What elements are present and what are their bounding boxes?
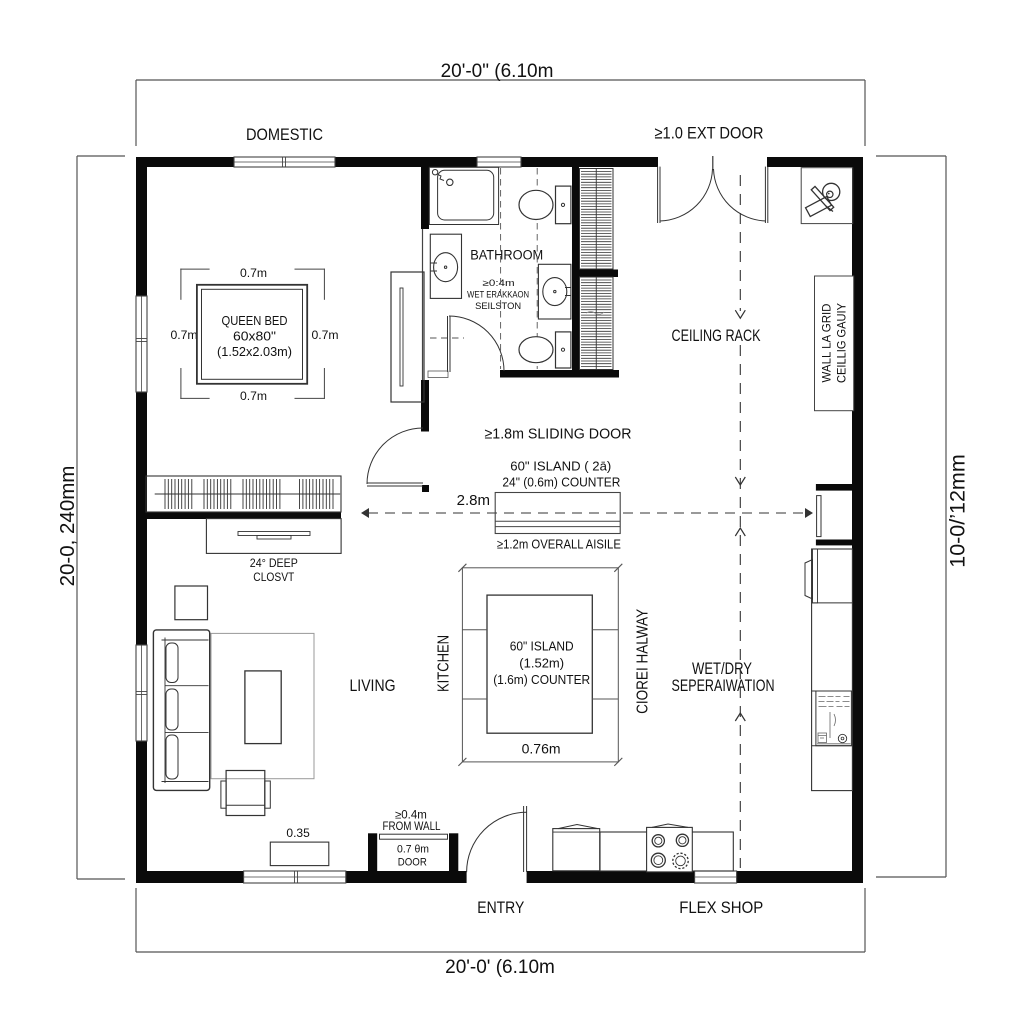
svg-text:0.7 θm: 0.7 θm [397,844,429,856]
svg-text:0.7m: 0.7m [240,389,267,403]
svg-text:0.76m: 0.76m [522,741,561,757]
svg-text:WALL LA GRID: WALL LA GRID [820,303,834,382]
svg-text:WET ERAKKAON: WET ERAKKAON [467,290,529,300]
svg-text:DOMESTIC: DOMESTIC [246,125,323,144]
svg-text:FLEX SHOP: FLEX SHOP [679,898,763,917]
svg-text:0.35: 0.35 [286,826,310,840]
svg-text:10-0/’12mm: 10-0/’12mm [946,454,970,568]
svg-text:LIVING: LIVING [350,676,396,695]
svg-text:CIOREI HALWAY: CIOREI HALWAY [635,609,652,714]
svg-text:24" (0.6m) COUNTER: 24" (0.6m) COUNTER [502,475,620,490]
svg-text:BATHROOM: BATHROOM [470,248,543,263]
svg-text:20'-0" (6.10m: 20'-0" (6.10m [441,61,554,82]
svg-text:20-0, 240mm: 20-0, 240mm [56,466,79,587]
svg-text:DOOR: DOOR [398,857,427,869]
svg-text:2.8m: 2.8m [457,492,490,509]
svg-text:QUEEN BED: QUEEN BED [222,313,288,328]
svg-text:≥0.4m: ≥0.4m [395,810,427,822]
svg-text:ENTRY: ENTRY [477,898,524,917]
svg-text:CEILING RACK: CEILING RACK [672,326,761,345]
svg-text:FROM WALL: FROM WALL [383,821,442,833]
svg-text:0.7m: 0.7m [311,328,338,342]
svg-text:≥0:4m: ≥0:4m [483,278,515,288]
svg-text:≥1.0 EXT DOOR: ≥1.0 EXT DOOR [655,124,764,143]
svg-text:60" ISLAND: 60" ISLAND [510,639,574,654]
svg-text:SEPERAIWATION: SEPERAIWATION [672,676,775,695]
svg-text:(1.6m) COUNTER: (1.6m) COUNTER [493,672,590,687]
svg-text:CLOSVT: CLOSVT [253,570,295,584]
svg-text:0.7m: 0.7m [170,328,197,342]
svg-text:(1.52x2.03m): (1.52x2.03m) [217,344,292,359]
svg-text:≥1.8m SLIDING DOOR: ≥1.8m SLIDING DOOR [485,426,632,443]
svg-text:KITCHEN: KITCHEN [436,635,453,692]
svg-text:SEILSTON: SEILSTON [475,301,521,311]
svg-text:CEILLIG GAUIY: CEILLIG GAUIY [835,303,849,383]
svg-text:60" ISLAND ( 2ā): 60" ISLAND ( 2ā) [510,459,611,474]
svg-text:0.7m: 0.7m [240,266,267,280]
svg-text:≥1.2m OVERALL AISILE: ≥1.2m OVERALL AISILE [497,537,621,552]
svg-text:24° DEEP: 24° DEEP [250,556,298,570]
svg-text:60x80": 60x80" [233,329,276,344]
svg-text:20'-0' (6.10m: 20'-0' (6.10m [445,957,555,978]
svg-text:(1.52m): (1.52m) [519,656,564,671]
